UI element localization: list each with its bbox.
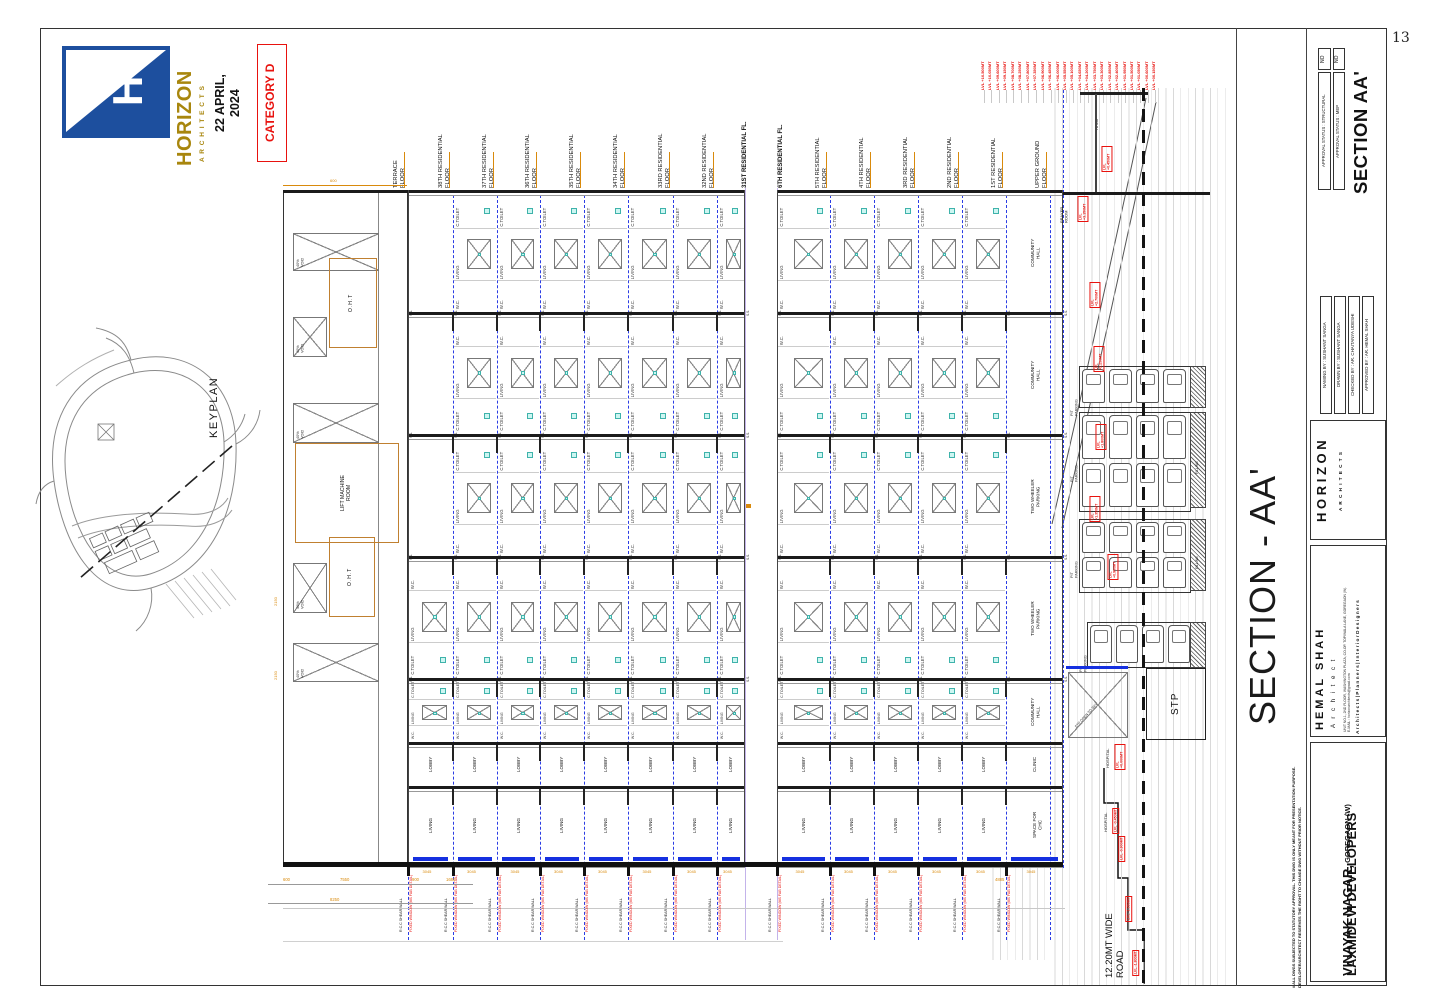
ss-label: S.S. (499, 304, 503, 316)
wall-stub (539, 559, 541, 575)
level-tag: LVL +2.250MT (1093, 346, 1104, 372)
fixture-icon (698, 497, 702, 501)
dim-text: 7550 (340, 877, 349, 882)
level-tick (1073, 90, 1074, 103)
slab-bar (967, 857, 1001, 861)
ss-label: S.S. (410, 670, 414, 682)
living-label: LIVING (893, 792, 898, 858)
room-label: W.C. (456, 319, 461, 345)
room-cell (629, 726, 672, 741)
room-label: W.C. (833, 319, 838, 345)
living-label: LIVING (849, 792, 854, 858)
room-label: W.C. (720, 728, 724, 739)
slab-bar (633, 857, 668, 861)
room-label: LIVING (500, 475, 505, 523)
car-icon (1142, 625, 1164, 663)
room-label: W.C. (833, 728, 837, 739)
rcc-wall-label: R.C.C SHEAR WALL (768, 874, 772, 932)
room-label: W.C. (676, 728, 680, 739)
wall-stub (961, 437, 963, 453)
lobby-label: LOBBY (472, 748, 477, 780)
room-label: W.C. (780, 728, 784, 739)
dim-text: 3045 (511, 869, 520, 874)
wall-stub (496, 315, 498, 331)
fixture-icon (521, 712, 525, 716)
fixture-icon (704, 657, 710, 663)
fixture-icon (807, 712, 811, 716)
fixture-icon (484, 688, 490, 694)
slab-bar (589, 857, 623, 861)
ss-label: S.S. (747, 670, 751, 682)
room-cell (454, 726, 496, 741)
fixture-icon (565, 615, 569, 619)
car-icon (1109, 415, 1132, 459)
floor-leader (449, 152, 450, 188)
room-label: LIVING (965, 593, 970, 641)
level-label: LVL +08.250MT (1018, 34, 1023, 90)
level-tick (1013, 90, 1014, 103)
wall-stub (873, 745, 875, 761)
fixture-icon (905, 452, 911, 458)
room-cell (778, 281, 829, 311)
fixture-icon (855, 497, 859, 501)
living-label: LIVING (516, 792, 521, 858)
rcc-wall-label: R.C.C SHEAR WALL (953, 874, 957, 932)
ss-label: S.S. (876, 548, 880, 560)
wall-stub (829, 681, 831, 697)
room-label: LIVING (921, 231, 926, 279)
wall-stub (917, 437, 919, 453)
room-label: C.TOILET (456, 197, 461, 227)
slab-line (777, 786, 1063, 789)
road-label: 12.20MT WIDE ROAD (1104, 866, 1126, 978)
fixture-icon (615, 657, 621, 663)
room-label: W.C. (921, 563, 926, 589)
ss-label: S.S. (1065, 548, 1069, 560)
room-label: W.C. (676, 563, 681, 589)
level-tag: LVL -1.800MT (1132, 950, 1139, 976)
wall-stub (961, 315, 963, 331)
terrace-zone-wall (283, 190, 284, 862)
ss-label: S.S. (779, 304, 783, 316)
room-label: W.C. (456, 563, 461, 589)
lobby-label: LOBBY (692, 748, 697, 780)
firm-name: H O R I Z O N (1314, 425, 1329, 537)
fixture-icon (615, 413, 621, 419)
wall-stub (716, 681, 718, 697)
fixture-icon (484, 208, 490, 214)
car-icon (1163, 369, 1186, 403)
level-label: LVL +10.050MT (988, 34, 993, 90)
room-label: W.C. (587, 728, 591, 739)
slab-bar (782, 857, 825, 861)
ss-label: S.S. (675, 548, 679, 560)
fixed-window-label: FIXED WINDOW (MS FAB DETAIL) (1007, 874, 1011, 932)
room-label: LIVING (921, 702, 925, 724)
fixture-icon (987, 712, 991, 716)
dim-text: 3045 (554, 869, 563, 874)
oht-label: O.H.T (348, 541, 354, 613)
room-cell (778, 561, 829, 591)
ss-label: S.S. (455, 548, 459, 560)
level-tag: LVL +1.800MT (1095, 424, 1106, 450)
fixture-icon (704, 208, 710, 214)
room-label: W.C. (411, 563, 416, 589)
fixture-icon (943, 712, 947, 716)
wall-stub (539, 789, 541, 805)
dim-text: 3045 (844, 869, 853, 874)
room-label: LIVING (631, 593, 636, 641)
fixture-icon (433, 712, 437, 716)
page-number: 13 (1392, 30, 1410, 46)
fixture-icon (698, 712, 702, 716)
room-label: C.TOILET (543, 197, 548, 227)
lobby-label: LOBBY (981, 748, 986, 780)
slab-bar (722, 857, 740, 861)
slab-line (408, 786, 745, 789)
ss-label: S.S. (1008, 670, 1012, 682)
wall-stub (917, 559, 919, 575)
car-icon (1109, 463, 1132, 507)
ss-label: S.S. (779, 548, 783, 560)
lobby-label: CLINIC (1032, 748, 1037, 780)
fixture-icon (861, 688, 867, 694)
fixture-icon (440, 688, 446, 694)
ss-label: S.S. (630, 548, 634, 560)
room-label: LIVING (780, 475, 785, 523)
room-label: C.TOILET (720, 441, 725, 471)
wall-stub (627, 789, 629, 805)
room-label: LIVING (965, 349, 970, 397)
room-label: LIVING (500, 349, 505, 397)
slab-bar (678, 857, 712, 861)
wall-stub (539, 315, 541, 331)
room-label: C.TOILET (921, 197, 926, 227)
car-icon (1168, 625, 1190, 663)
wall-stub (452, 559, 454, 575)
wall-stub (496, 559, 498, 575)
fixture-icon (855, 712, 859, 716)
fixture-icon (817, 452, 823, 458)
fixed-window-label: FIXED WINDOW (MS FAB DETAIL) (718, 874, 722, 932)
wall-stub (961, 745, 963, 761)
fixture-icon (698, 615, 702, 619)
room-cell (674, 726, 716, 741)
fixture-icon (433, 615, 437, 619)
room-label: LIVING (780, 702, 784, 724)
wall-stub (583, 559, 585, 575)
level-label: LVL +02.850MT (1108, 34, 1113, 90)
approval-structural-label: APPROVAL STATUS : STRUCTURAL (1321, 74, 1326, 188)
living-label: LIVING (937, 792, 942, 858)
level-label: LVL +02.400MT (1115, 34, 1120, 90)
architect-tagline: A r c h i t e c t s | P l a n n e r s | … (1356, 548, 1362, 734)
ss-label: S.S. (719, 548, 723, 560)
fixture-icon (698, 253, 702, 257)
community-label: COMMUNITY HALL (1030, 322, 1041, 428)
wall-stub (873, 437, 875, 453)
ss-label: S.S. (747, 304, 751, 316)
room-label: LIVING (720, 702, 724, 724)
wall-stub (672, 745, 674, 761)
fixture-icon (484, 657, 490, 663)
fixture-icon (943, 497, 947, 501)
dim-text: 600 (330, 178, 337, 183)
fixture-icon (609, 253, 613, 257)
fixture-icon (565, 253, 569, 257)
room-label: C.TOILET (456, 685, 460, 698)
slab-line (777, 742, 1063, 745)
living-label: LIVING (603, 792, 608, 858)
fixture-icon (943, 615, 947, 619)
slab-bar (458, 857, 492, 861)
room-label: W.C. (456, 728, 460, 739)
room-label: C.TOILET (631, 197, 636, 227)
filling-label: FILLING (1195, 446, 1199, 474)
fixed-window-label: FIXED WINDOW (MS FAB DETAIL) (629, 874, 633, 932)
dim-line (283, 185, 407, 186)
fixed-window-label: FIXED WINDOW (MS FAB DETAIL) (498, 874, 502, 932)
ss-label: S.S. (876, 304, 880, 316)
fixed-window-label: FIXED WINDOW (MS FAB DETAIL) (831, 874, 835, 932)
level-label: LVL +05.550MT (1063, 34, 1068, 90)
room-label: C.TOILET (780, 685, 784, 698)
fixture-icon (905, 657, 911, 663)
fixture-icon (899, 253, 903, 257)
car-icon (1163, 557, 1186, 588)
room-cell (919, 726, 961, 741)
slab-bar (413, 857, 448, 861)
room-label: C.TOILET (676, 685, 680, 698)
room-label: C.TOILET (965, 441, 970, 471)
ss-label: S.S. (719, 426, 723, 438)
room-label: W.C. (587, 319, 592, 345)
room-label: W.C. (543, 319, 548, 345)
wall-stub (583, 315, 585, 331)
fixture-icon (899, 615, 903, 619)
room-label: W.C. (965, 728, 969, 739)
car-icon (1109, 522, 1132, 553)
client-name: LAXMIDEVI DEVELOPERS (1344, 750, 1359, 976)
hospital-label: HOSPITAL (1106, 740, 1111, 768)
wall-stub (1005, 315, 1007, 331)
ss-label: S.S. (542, 426, 546, 438)
fixture-icon (899, 497, 903, 501)
wall-stub (716, 789, 718, 805)
room-cell (963, 726, 1005, 741)
level-label: LVL +03.300MT (1100, 34, 1105, 90)
terrace-zone-wall (407, 190, 408, 862)
level-label: LVL +06.450MT (1048, 34, 1053, 90)
wall-stub (496, 789, 498, 805)
wall-stub (829, 437, 831, 453)
wall-stub (1005, 681, 1007, 697)
approval-structural-value: NO (1321, 49, 1327, 69)
floor-leader (713, 152, 714, 188)
drawing-sheet: 13 H HORIZON A R C H I T E C T S 22 APRI… (0, 0, 1440, 1001)
fixture-icon (732, 452, 738, 458)
room-label: W.C. (720, 319, 725, 345)
ss-label: S.S. (410, 304, 414, 316)
room-label: C.TOILET (833, 685, 837, 698)
room-label: LIVING (720, 349, 725, 397)
level-tag: LVL -0.450MT (1112, 808, 1119, 834)
fixture-icon (521, 371, 525, 375)
pit-parking-label: PIT PARKING (1070, 442, 1079, 482)
room-label: LIVING (921, 349, 926, 397)
room-label: W.C. (631, 563, 636, 589)
architect-name: HEMAL SHAH (1314, 552, 1327, 730)
fixture-icon (527, 688, 533, 694)
living-label: LIVING (692, 792, 697, 858)
room-label: C.TOILET (543, 441, 548, 471)
room-label: C.TOILET (965, 197, 970, 227)
fixture-icon (949, 688, 955, 694)
room-label: LIVING (965, 475, 970, 523)
fixture-icon (993, 208, 999, 214)
dim-text: 3045 (932, 869, 941, 874)
room-label: LIVING (500, 702, 504, 724)
credit-drawn: DRAWN BY : SUSHANT SANGA (1336, 298, 1341, 412)
room-cell (831, 726, 873, 741)
wall-stub (583, 789, 585, 805)
car-icon (1082, 522, 1105, 553)
room-label: C.TOILET (676, 441, 681, 471)
room-label: LIVING (456, 231, 461, 279)
ss-label: S.S. (630, 670, 634, 682)
floor-leader (1002, 152, 1003, 188)
lobby-label: LOBBY (937, 748, 942, 780)
rcc-wall-label: R.C.C SHEAR WALL (575, 874, 579, 932)
wall-stub (917, 745, 919, 761)
ss-label: S.S. (719, 670, 723, 682)
room-cell (778, 726, 829, 741)
brand-subtitle: A R C H I T E C T S (199, 48, 207, 162)
room-label: C.TOILET (720, 685, 724, 698)
wall-stub (917, 681, 919, 697)
fixture-icon (905, 208, 911, 214)
dim-text: 3045 (643, 869, 652, 874)
lobby-label: LOBBY (801, 748, 806, 780)
living-label: LIVING (801, 792, 806, 858)
car-icon (1109, 369, 1132, 403)
floor-leader (669, 152, 670, 188)
fixture-icon (733, 371, 737, 375)
room-label: LIVING (833, 349, 838, 397)
fixture-icon (949, 208, 955, 214)
dim-text: 3045 (598, 869, 607, 874)
fixture-icon (807, 615, 811, 619)
room-label: LIVING (587, 231, 592, 279)
brand-name: HORIZON (174, 44, 198, 166)
fixed-window-label: FIXED WINDOW (MS FAB DETAIL) (778, 874, 782, 932)
ss-label: S.S. (675, 670, 679, 682)
fixture-icon (733, 615, 737, 619)
dim-text: 2150 (274, 566, 279, 606)
filling-hatch (1190, 366, 1206, 408)
room-label: C.TOILET (500, 685, 504, 698)
room-cell (875, 726, 917, 741)
level-label: LVL +00.150MT (1152, 34, 1157, 90)
level-tag: LVL +0.450MT (1101, 146, 1112, 172)
ss-label: S.S. (719, 304, 723, 316)
fixture-icon (807, 497, 811, 501)
room-label: LIVING (631, 702, 635, 724)
room-label: C.TOILET (587, 197, 592, 227)
wall-stub (716, 315, 718, 331)
floor-leader (404, 152, 405, 188)
room-label: W.C. (780, 319, 785, 345)
wall-stub (873, 681, 875, 697)
level-label: LVL +10.500MT (981, 34, 986, 90)
fixture-icon (949, 452, 955, 458)
community-label: COMMUNITY HALL (1030, 200, 1041, 306)
car-icon (1090, 625, 1112, 663)
ss-label: S.S. (832, 426, 836, 438)
rcc-wall-label: R.C.C SHEAR WALL (664, 874, 668, 932)
wall-stub (452, 437, 454, 453)
room-label: W.C. (631, 728, 635, 739)
fixture-icon (565, 371, 569, 375)
room-label: LIVING (500, 593, 505, 641)
wall-stub (452, 745, 454, 761)
ss-label: S.S. (586, 426, 590, 438)
ss-label: S.S. (1008, 548, 1012, 560)
room-label: W.C. (877, 728, 881, 739)
ss-label: S.S. (779, 670, 783, 682)
fixture-icon (653, 712, 657, 716)
ss-label: S.S. (586, 670, 590, 682)
room-label: LIVING (411, 593, 416, 641)
ss-label: S.S. (964, 548, 968, 560)
room-label: LIVING (833, 593, 838, 641)
room-label: LIVING (720, 593, 725, 641)
community-label: TWO WHEELER PARKING (1030, 566, 1041, 672)
ss-label: S.S. (455, 670, 459, 682)
level-label: LVL +04.650MT (1078, 34, 1083, 90)
fixture-icon (565, 497, 569, 501)
floor-leader (536, 152, 537, 188)
ss-label: S.S. (499, 670, 503, 682)
fixture-icon (987, 253, 991, 257)
keyplan-label: KEYPLAN (208, 352, 221, 438)
fixture-icon (660, 208, 666, 214)
wall-stub (917, 315, 919, 331)
ss-label: S.S. (876, 670, 880, 682)
ss-label: S.S. (675, 426, 679, 438)
ss-label: S.S. (410, 426, 414, 438)
ss-label: S.S. (1008, 426, 1012, 438)
level-label: LVL +00.600MT (1145, 34, 1150, 90)
room-label: LIVING (631, 475, 636, 523)
ss-label: S.S. (920, 548, 924, 560)
wall-stub (1005, 437, 1007, 453)
wall-stub (672, 681, 674, 697)
ss-label: S.S. (410, 548, 414, 560)
ss-label: S.S. (1008, 304, 1012, 316)
slab-bar (545, 857, 579, 861)
fixture-icon (817, 688, 823, 694)
rcc-wall-label: R.C.C SHEAR WALL (708, 874, 712, 932)
room-label: LIVING (543, 231, 548, 279)
room-label: C.TOILET (921, 441, 926, 471)
void-label: 40% VOID (296, 567, 305, 609)
wall-stub (961, 681, 963, 697)
wall-stub (829, 745, 831, 761)
slab-line (408, 190, 745, 193)
fixture-icon (861, 657, 867, 663)
ss-label: S.S. (542, 670, 546, 682)
